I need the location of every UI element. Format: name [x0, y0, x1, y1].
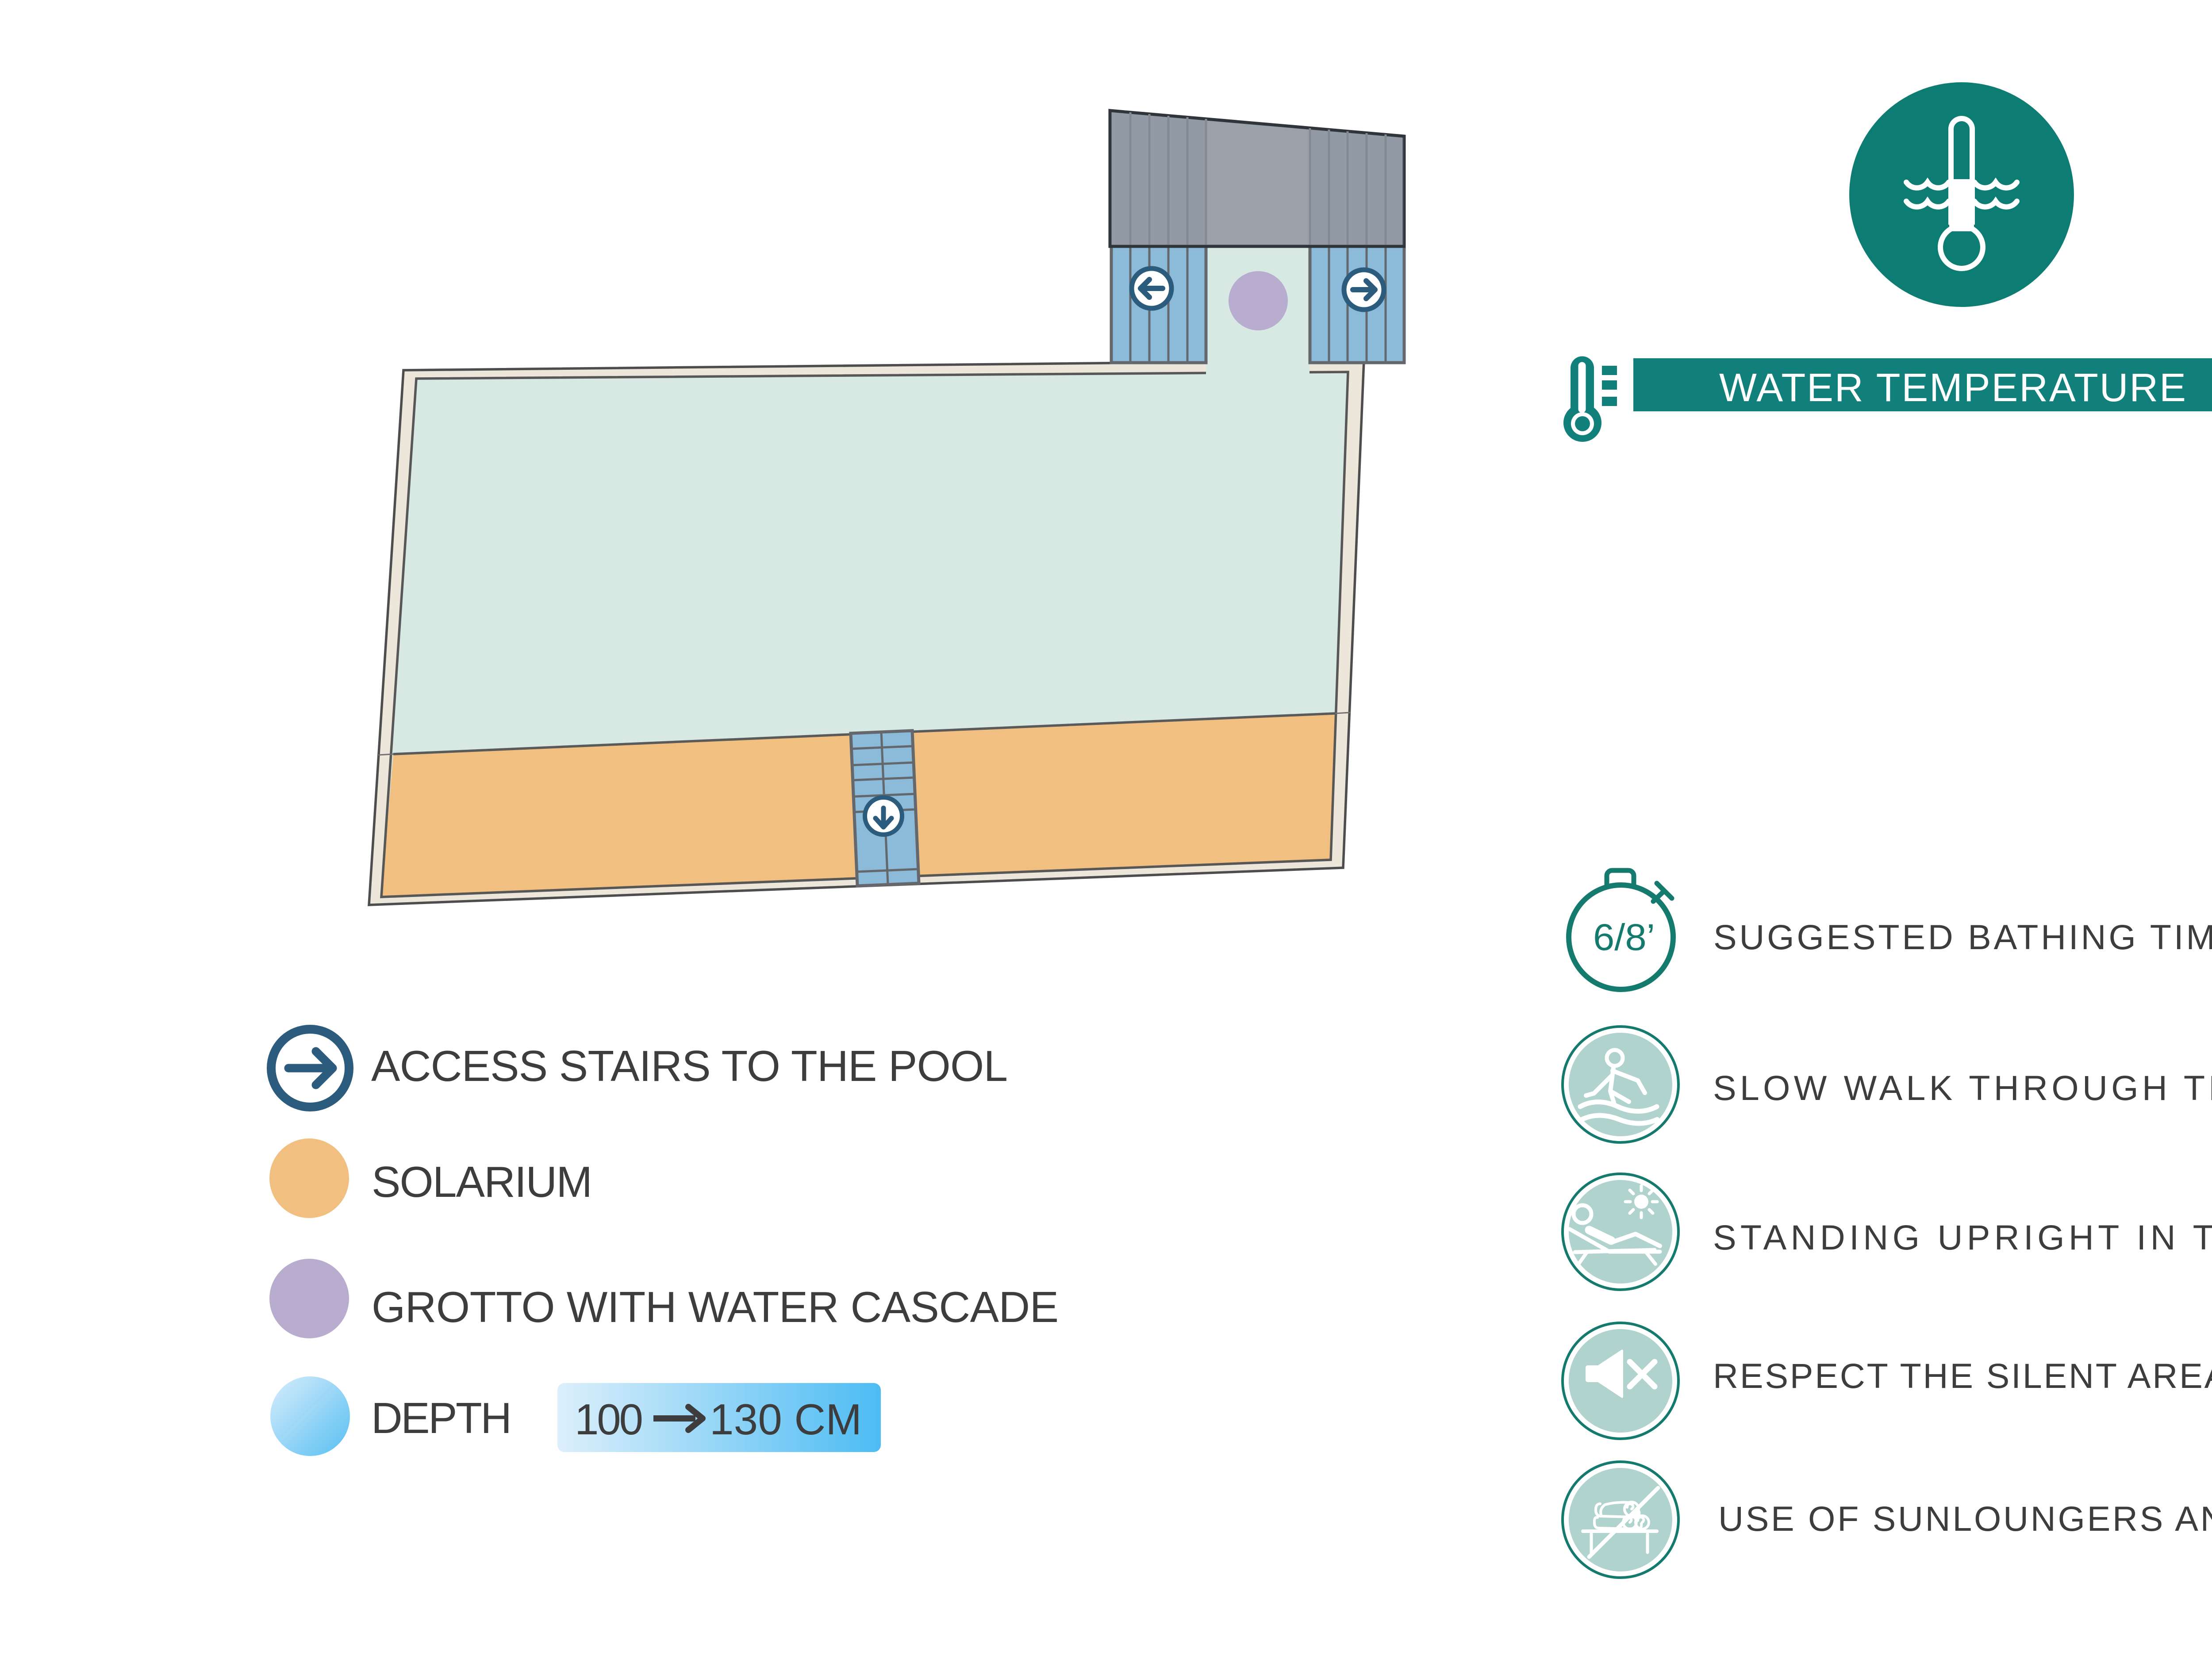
svg-text:STANDING UPRIGHT IN THE WATER: STANDING UPRIGHT IN THE WATER [1713, 1218, 2212, 1257]
svg-text:SOLARIUM: SOLARIUM [372, 1157, 592, 1206]
svg-text:USE OF SUNLOUNGERS AND OTHER I: USE OF SUNLOUNGERS AND OTHER ITEMS [1718, 1499, 2212, 1538]
svg-text:DEPTH: DEPTH [371, 1394, 512, 1442]
svg-text:100: 100 [575, 1395, 643, 1444]
svg-text:SLOW WALK THROUGH THE WATER: SLOW WALK THROUGH THE WATER [1713, 1068, 2212, 1107]
svg-text:GROTTO WITH WATER CASCADE: GROTTO WITH WATER CASCADE [372, 1283, 1059, 1331]
svg-text:RESPECT THE SILENT AREA RULES: RESPECT THE SILENT AREA RULES [1713, 1356, 2212, 1395]
svg-text:130 CM: 130 CM [710, 1395, 862, 1444]
svg-text:ACCESS STAIRS TO THE POOL: ACCESS STAIRS TO THE POOL [371, 1042, 1008, 1090]
svg-text:WATER TEMPERATURE: WATER TEMPERATURE [1719, 366, 2186, 410]
svg-text:6/8’: 6/8’ [1593, 916, 1655, 958]
svg-text:SUGGESTED BATHING TIMES: SUGGESTED BATHING TIMES [1713, 917, 2212, 957]
